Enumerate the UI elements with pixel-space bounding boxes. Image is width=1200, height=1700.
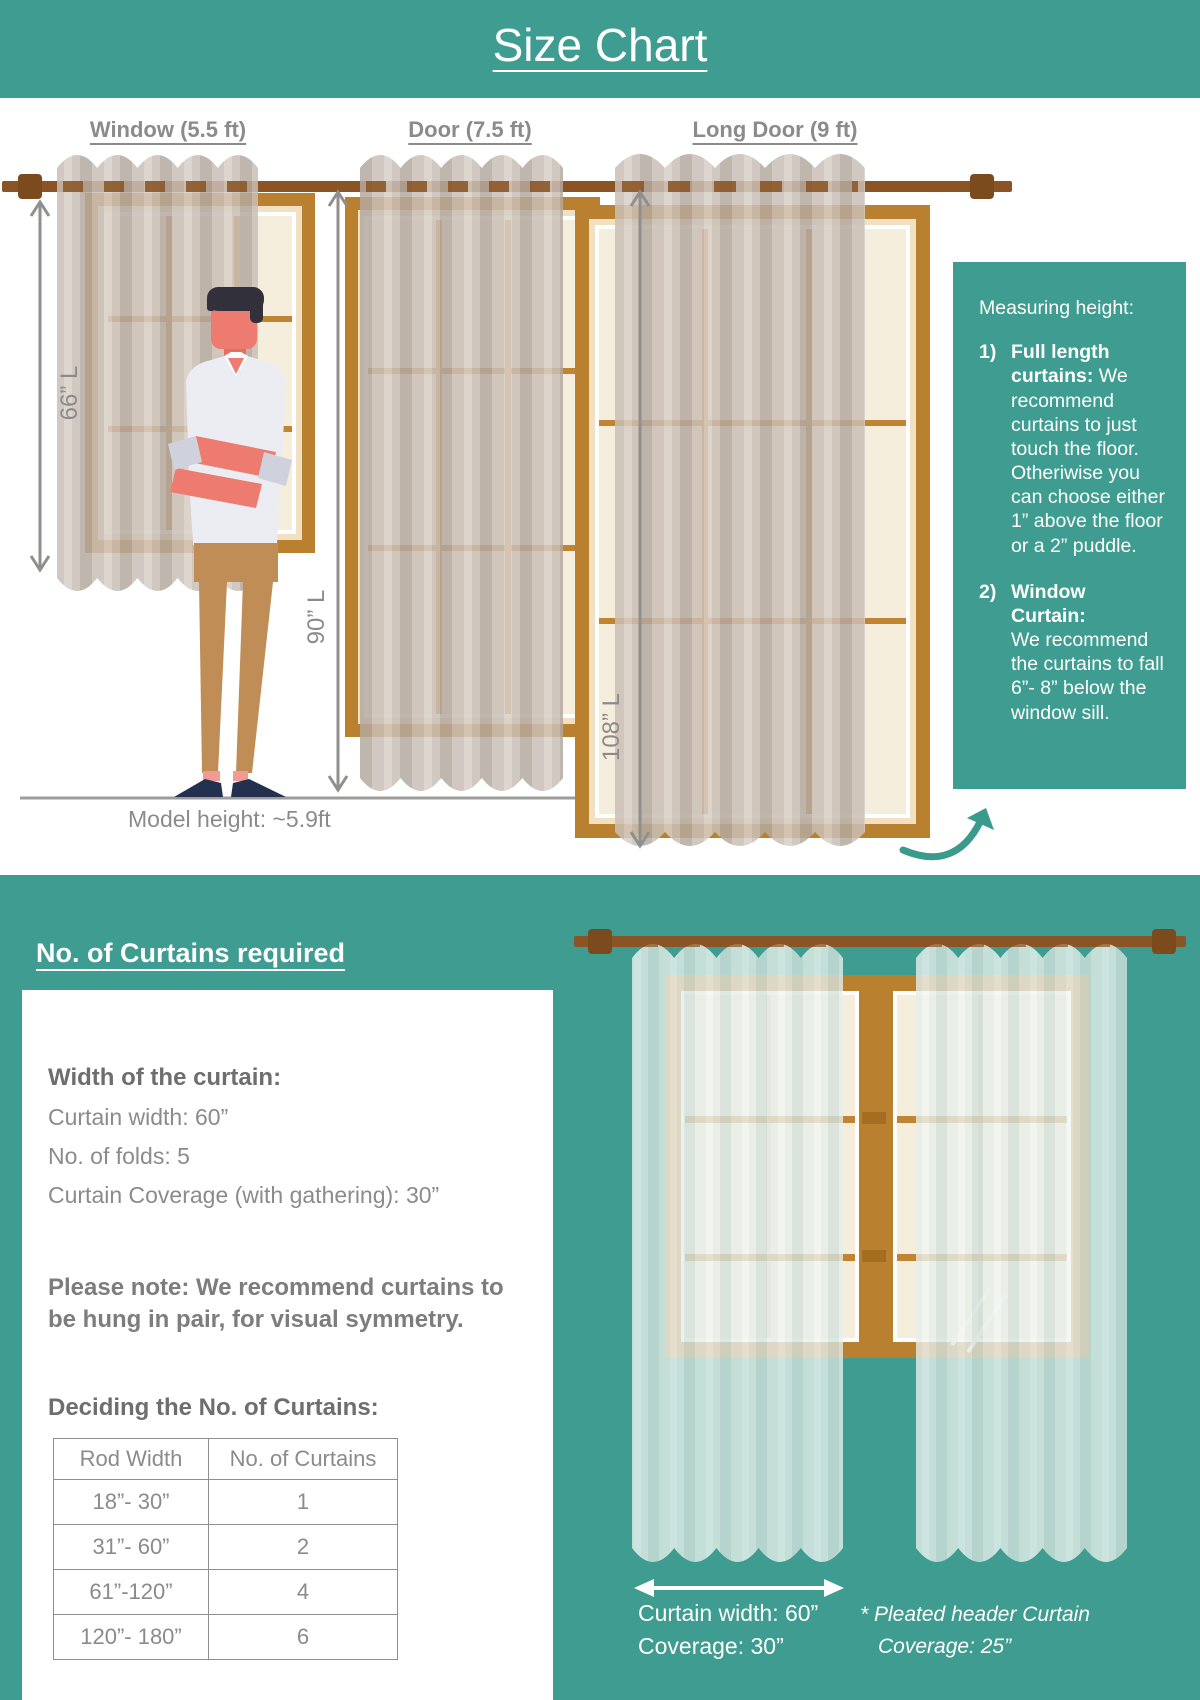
measure-arrow-66 (31, 202, 49, 570)
length-label-108: 108” L (597, 667, 627, 787)
crossed-arm (190, 436, 276, 478)
size-chart-infographic: Size Chart Window (5.5 ft) Door (7.5 ft)… (0, 0, 1200, 1700)
sleeve-cuff (258, 452, 292, 486)
long-door-illustration (575, 205, 930, 838)
collar (224, 352, 248, 377)
long-door-curtain (615, 154, 865, 846)
measure-arrow-90 (329, 192, 347, 790)
door-curtain (360, 155, 563, 791)
folds-line: No. of folds: 5 (48, 1143, 190, 1170)
crossed-arm (170, 468, 262, 508)
rod-width-header: Rod Width (54, 1439, 209, 1480)
coverage-line: Curtain Coverage (with gathering): 30” (48, 1182, 439, 1209)
shirt (186, 354, 286, 545)
shoe (174, 779, 223, 797)
curtain-width-label: Curtain width: 60” (638, 1600, 818, 1627)
table-header-row: Rod Width No. of Curtains (54, 1439, 398, 1480)
table-row: 61”-120” 4 (54, 1570, 398, 1615)
rod-finial-right (970, 174, 994, 199)
pleated-note-line2: Coverage: 25” (878, 1635, 1011, 1659)
shoe (231, 779, 286, 797)
table-row: 18”- 30” 1 (54, 1480, 398, 1525)
rod-finial-left (18, 174, 42, 199)
width-block-heading: Width of the curtain: (48, 1064, 281, 1092)
sock (233, 771, 248, 781)
table-row: 31”- 60” 2 (54, 1525, 398, 1570)
curved-arrow-icon (903, 808, 994, 857)
measuring-item-1: 1) Full length curtains: We recommend cu… (979, 340, 1166, 558)
model-height-caption: Model height: ~5.9ft (128, 806, 331, 833)
table-row: 120”- 180” 6 (54, 1615, 398, 1660)
column-label-door: Door (7.5 ft) (350, 117, 590, 143)
column-label-window: Window (5.5 ft) (48, 117, 288, 143)
window-illustration (85, 193, 315, 553)
pleated-note-line1: * Pleated header Curtain (860, 1603, 1090, 1627)
no-of-curtains-header: No. of Curtains (209, 1439, 398, 1480)
hair (207, 287, 264, 311)
curtains-table: Rod Width No. of Curtains 18”- 30” 1 31”… (53, 1438, 398, 1660)
item-2-text: We recommend the curtains to fall 6”- 8”… (1011, 628, 1166, 725)
coverage-label: Coverage: 30” (638, 1633, 784, 1660)
item-2-bold: Window Curtain: (1011, 580, 1141, 628)
curtain-rod (2, 174, 1012, 199)
window-curtain (57, 155, 258, 591)
item-1-text: We recommend curtains to just touch the … (1011, 365, 1165, 556)
measuring-item-2: 2) Window Curtain: We recommend the curt… (979, 580, 1166, 725)
curtains-required-heading: No. of Curtains required (36, 938, 345, 969)
measuring-height-box: Measuring height: 1) Full length curtain… (953, 262, 1186, 789)
curtain-width-line: Curtain width: 60” (48, 1104, 228, 1131)
model-person (168, 287, 292, 797)
length-label-90: 90” L (302, 557, 332, 677)
sock (203, 771, 220, 781)
pair-note: Please note: We recommend curtains to be… (48, 1272, 518, 1337)
pants (194, 543, 278, 582)
neck (224, 334, 246, 360)
length-label-66: 66” L (55, 333, 85, 453)
sleeve-cuff (168, 436, 202, 470)
curtain-info-box: Width of the curtain: Curtain width: 60”… (22, 990, 553, 1700)
measure-arrow-108 (631, 192, 649, 846)
door-illustration (345, 197, 600, 737)
face (211, 299, 257, 349)
page-title: Size Chart (0, 18, 1200, 72)
measuring-box-heading: Measuring height: (979, 296, 1166, 320)
item-1-bold: Full length curtains: (1011, 341, 1110, 387)
column-label-long-door: Long Door (9 ft) (655, 117, 895, 143)
table-heading: Deciding the No. of Curtains: (48, 1394, 379, 1422)
